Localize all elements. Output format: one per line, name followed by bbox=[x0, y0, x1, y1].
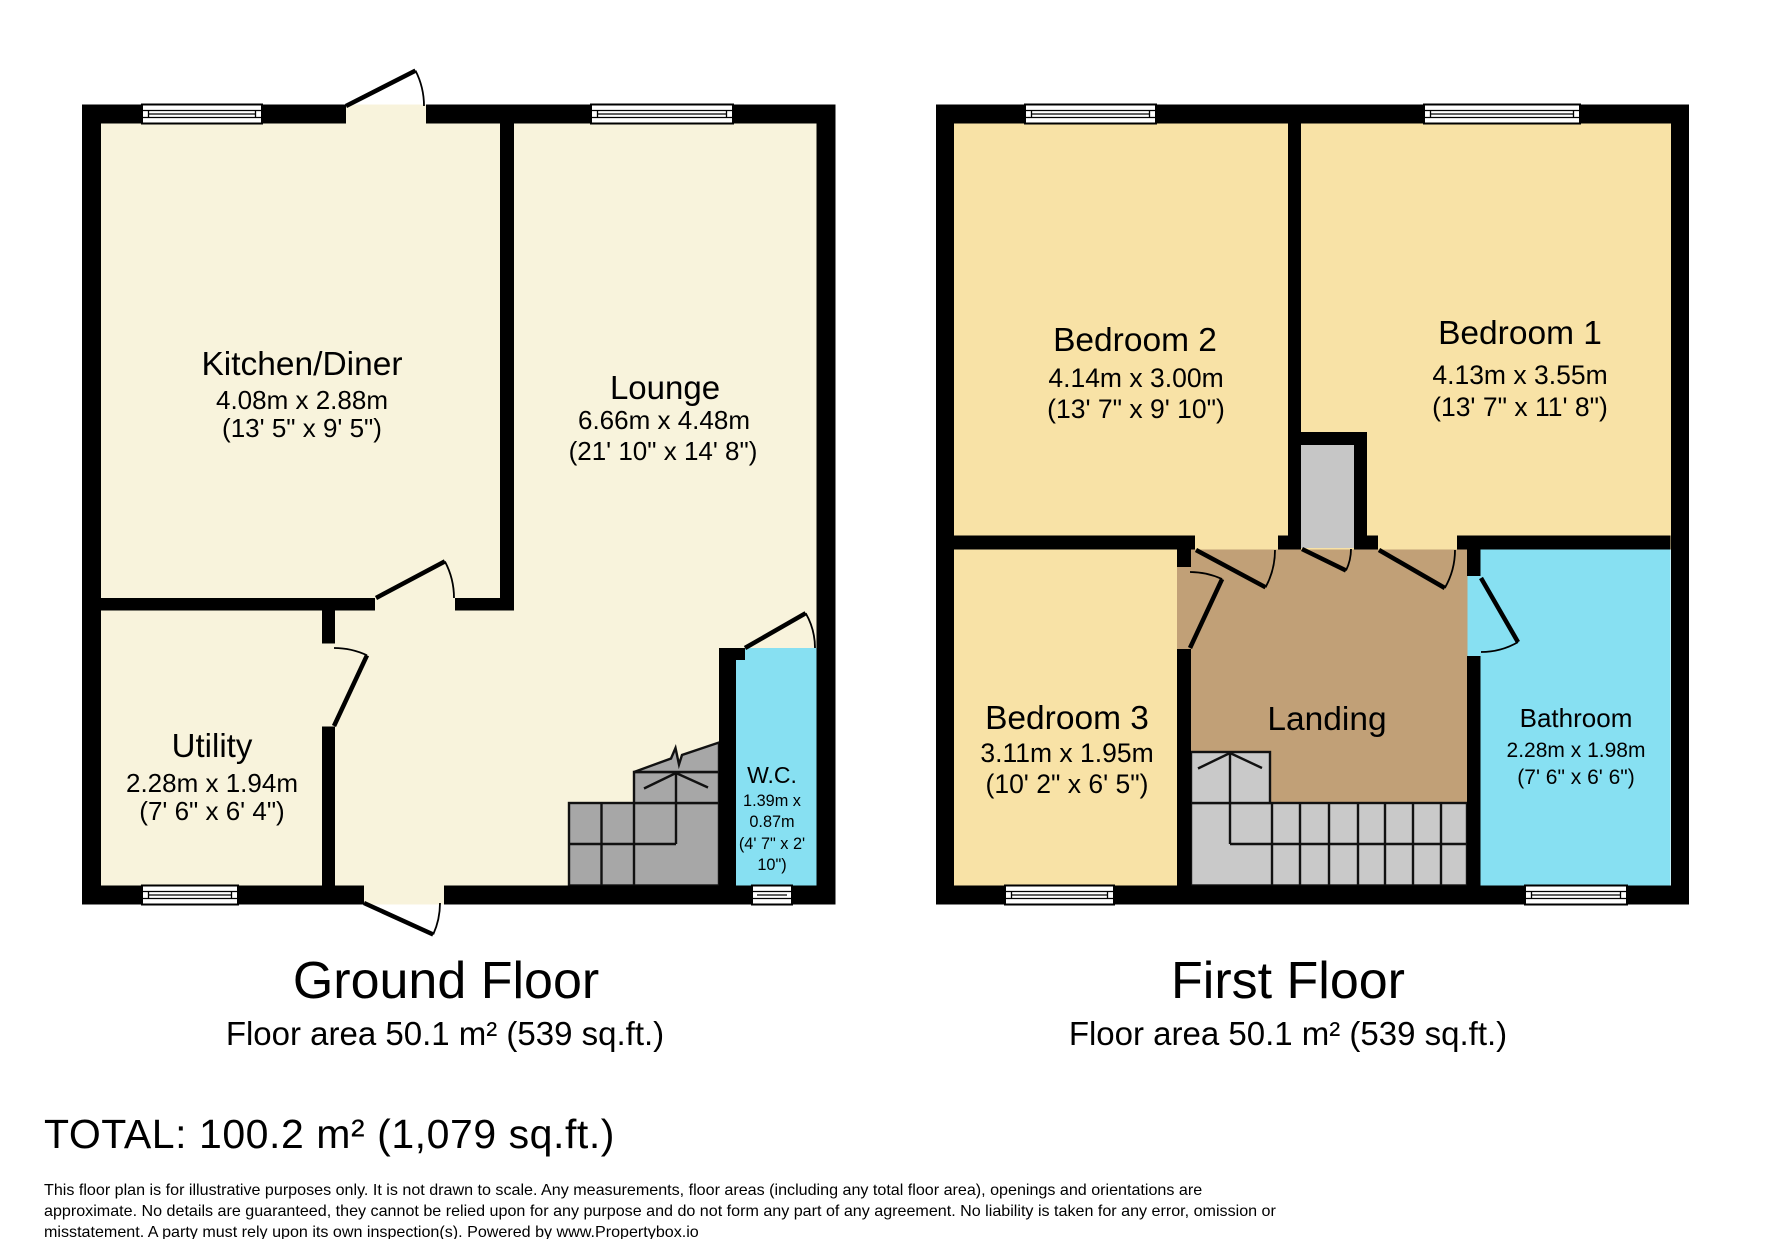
svg-text:(7' 6" x 6' 6"): (7' 6" x 6' 6") bbox=[1517, 766, 1634, 789]
svg-text:0.87m: 0.87m bbox=[749, 813, 794, 831]
svg-text:Ground Floor: Ground Floor bbox=[293, 952, 599, 1010]
svg-text:6.66m x 4.48m: 6.66m x 4.48m bbox=[578, 405, 750, 435]
svg-text:(7' 6" x 6' 4"): (7' 6" x 6' 4") bbox=[139, 796, 284, 826]
svg-text:4.08m x 2.88m: 4.08m x 2.88m bbox=[216, 385, 388, 415]
svg-text:(4' 7" x 2': (4' 7" x 2' bbox=[739, 835, 805, 853]
svg-text:Bedroom 3: Bedroom 3 bbox=[985, 700, 1149, 737]
svg-text:(13' 7" x 11' 8"): (13' 7" x 11' 8") bbox=[1432, 392, 1608, 422]
svg-text:4.13m x 3.55m: 4.13m x 3.55m bbox=[1432, 360, 1607, 390]
svg-text:W.C.: W.C. bbox=[747, 762, 797, 788]
svg-text:3.11m x 1.95m: 3.11m x 1.95m bbox=[980, 738, 1153, 768]
svg-text:Landing: Landing bbox=[1267, 701, 1386, 738]
svg-text:Bedroom 1: Bedroom 1 bbox=[1438, 315, 1602, 352]
svg-text:misstatement. A party must rel: misstatement. A party must rely upon its… bbox=[44, 1223, 699, 1239]
svg-text:(21' 10" x 14' 8"): (21' 10" x 14' 8") bbox=[569, 436, 758, 466]
svg-text:Lounge: Lounge bbox=[610, 369, 720, 406]
svg-text:Bedroom 2: Bedroom 2 bbox=[1053, 322, 1217, 359]
svg-text:Floor area 50.1 m² (539 sq.ft.: Floor area 50.1 m² (539 sq.ft.) bbox=[226, 1015, 664, 1052]
svg-text:4.14m x 3.00m: 4.14m x 3.00m bbox=[1048, 363, 1223, 393]
svg-text:(13' 5" x 9' 5"): (13' 5" x 9' 5") bbox=[222, 413, 382, 443]
svg-text:TOTAL: 100.2 m² (1,079 sq.ft.): TOTAL: 100.2 m² (1,079 sq.ft.) bbox=[44, 1111, 615, 1157]
svg-text:10"): 10") bbox=[757, 856, 786, 874]
svg-text:2.28m x 1.98m: 2.28m x 1.98m bbox=[1507, 739, 1646, 762]
svg-text:approximate. No details are gu: approximate. No details are guaranteed, … bbox=[44, 1202, 1277, 1220]
svg-text:Utility: Utility bbox=[172, 727, 253, 764]
svg-text:2.28m x 1.94m: 2.28m x 1.94m bbox=[126, 768, 298, 798]
svg-text:Bathroom: Bathroom bbox=[1520, 703, 1633, 733]
svg-text:This floor plan is for illustr: This floor plan is for illustrative purp… bbox=[44, 1181, 1202, 1199]
svg-text:Kitchen/Diner: Kitchen/Diner bbox=[201, 346, 402, 383]
svg-text:First Floor: First Floor bbox=[1171, 952, 1405, 1010]
svg-text:1.39m x: 1.39m x bbox=[743, 792, 801, 810]
svg-text:(10' 2" x 6' 5"): (10' 2" x 6' 5") bbox=[986, 769, 1149, 799]
svg-text:(13' 7" x 9' 10"): (13' 7" x 9' 10") bbox=[1047, 394, 1225, 424]
svg-text:Floor area 50.1 m² (539 sq.ft.: Floor area 50.1 m² (539 sq.ft.) bbox=[1069, 1015, 1507, 1052]
